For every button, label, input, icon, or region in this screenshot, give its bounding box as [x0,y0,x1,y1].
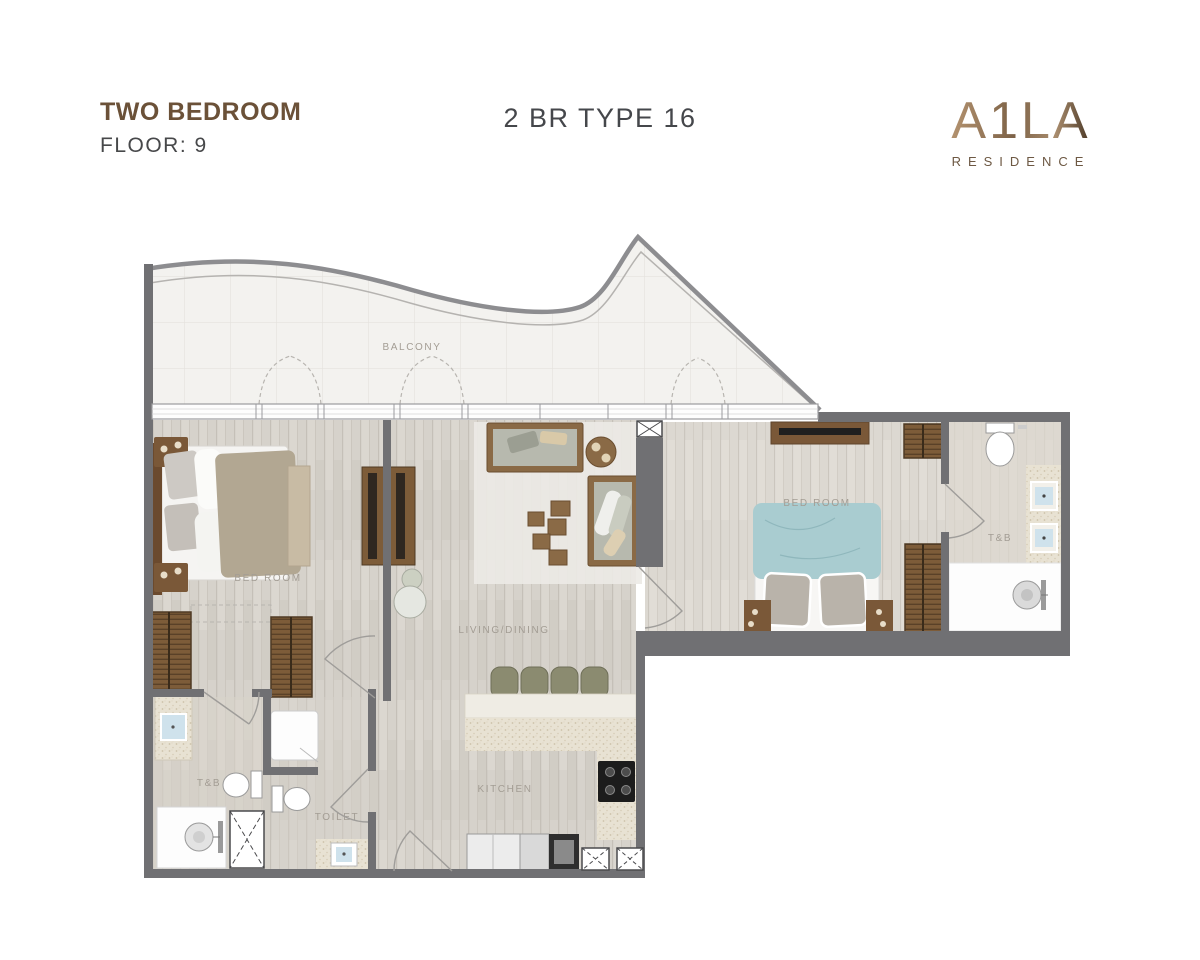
tb-left-toilet-tank [251,771,262,798]
bed2-blanket [753,503,881,579]
side-table-large [394,586,426,618]
tb-right-toilet [986,432,1014,466]
bed2-pillow [819,573,868,627]
bar-counter [465,694,636,718]
tv [779,428,861,435]
window-band [152,404,818,419]
bedroom2-label: BED ROOM [783,498,850,509]
cooktop [598,761,635,802]
floor-plan: BALCONY BED ROOM [0,0,1200,960]
toilet-shower [271,711,318,760]
coffee-table [586,437,616,467]
kitchen-label: KITCHEN [477,784,532,795]
kitchen-counter-top [465,718,636,751]
bedroom1-label: BED ROOM [234,573,301,584]
bed2-nightstand-right [866,600,893,632]
balcony-label: BALCONY [383,342,442,353]
balcony: BALCONY [146,237,820,410]
bed1-bench [288,466,310,566]
toilet-label: TOILET [315,812,359,823]
toilet-bowl [284,788,310,811]
floor-plan-page: TWO BEDROOM FLOOR: 9 2 BR TYPE 16 A1LA R… [0,0,1200,960]
living-dining-label: LIVING/DINING [458,625,549,636]
tb-left-label: T&B [197,778,221,789]
bed1-nightstand-bottom [154,563,188,592]
bed2-nightstand-left [744,600,771,632]
tb-right-label: T&B [988,533,1012,544]
tb-left-toilet [223,773,249,797]
dishwasher [520,834,549,871]
toilet-tank [272,786,283,812]
